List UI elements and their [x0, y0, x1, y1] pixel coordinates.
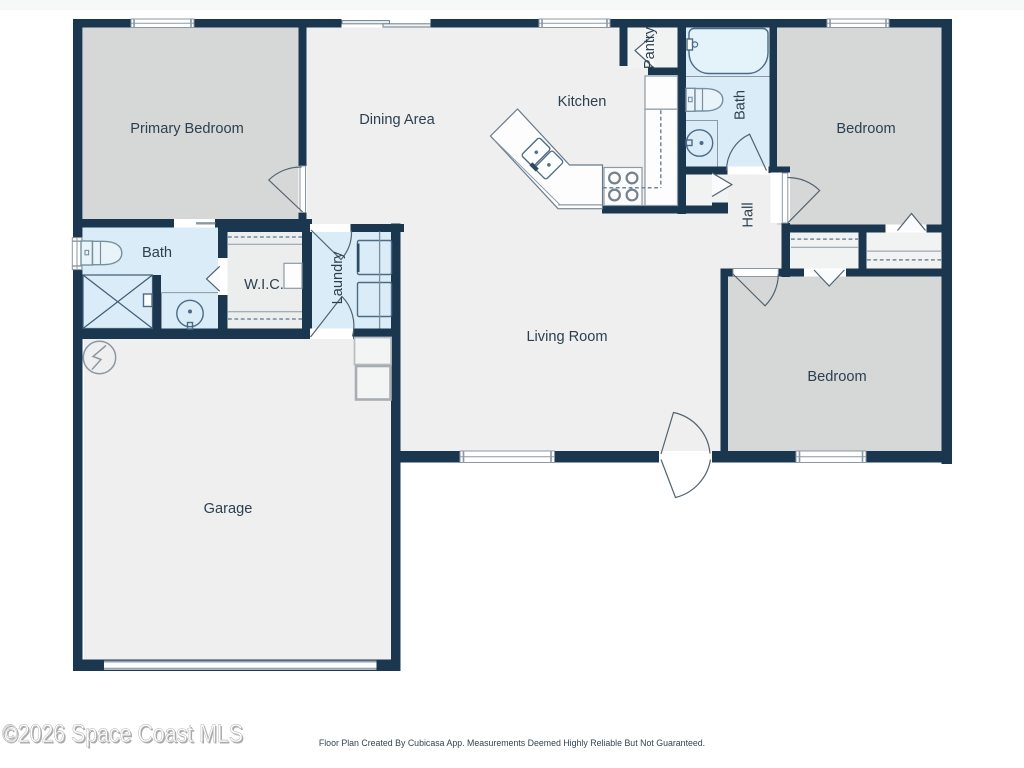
- svg-text:Bath: Bath: [142, 245, 172, 261]
- svg-text:Floor Plan Created By Cubicasa: Floor Plan Created By Cubicasa App. Meas…: [319, 738, 705, 748]
- svg-text:Dining Area: Dining Area: [359, 112, 435, 128]
- svg-text:Bath: Bath: [733, 90, 749, 120]
- svg-text:Pantry: Pantry: [642, 26, 658, 69]
- svg-text:Bedroom: Bedroom: [807, 369, 866, 385]
- svg-text:Laundry: Laundry: [330, 251, 346, 304]
- svg-text:Garage: Garage: [204, 501, 253, 517]
- svg-text:©2026 Space Coast MLS: ©2026 Space Coast MLS: [2, 720, 243, 748]
- svg-text:Hall: Hall: [741, 202, 757, 227]
- svg-text:Living Room: Living Room: [526, 329, 607, 345]
- svg-text:Primary Bedroom: Primary Bedroom: [130, 121, 244, 137]
- svg-text:W.I.C.: W.I.C.: [244, 277, 284, 293]
- svg-text:Bedroom: Bedroom: [836, 121, 895, 137]
- svg-text:Kitchen: Kitchen: [558, 94, 607, 110]
